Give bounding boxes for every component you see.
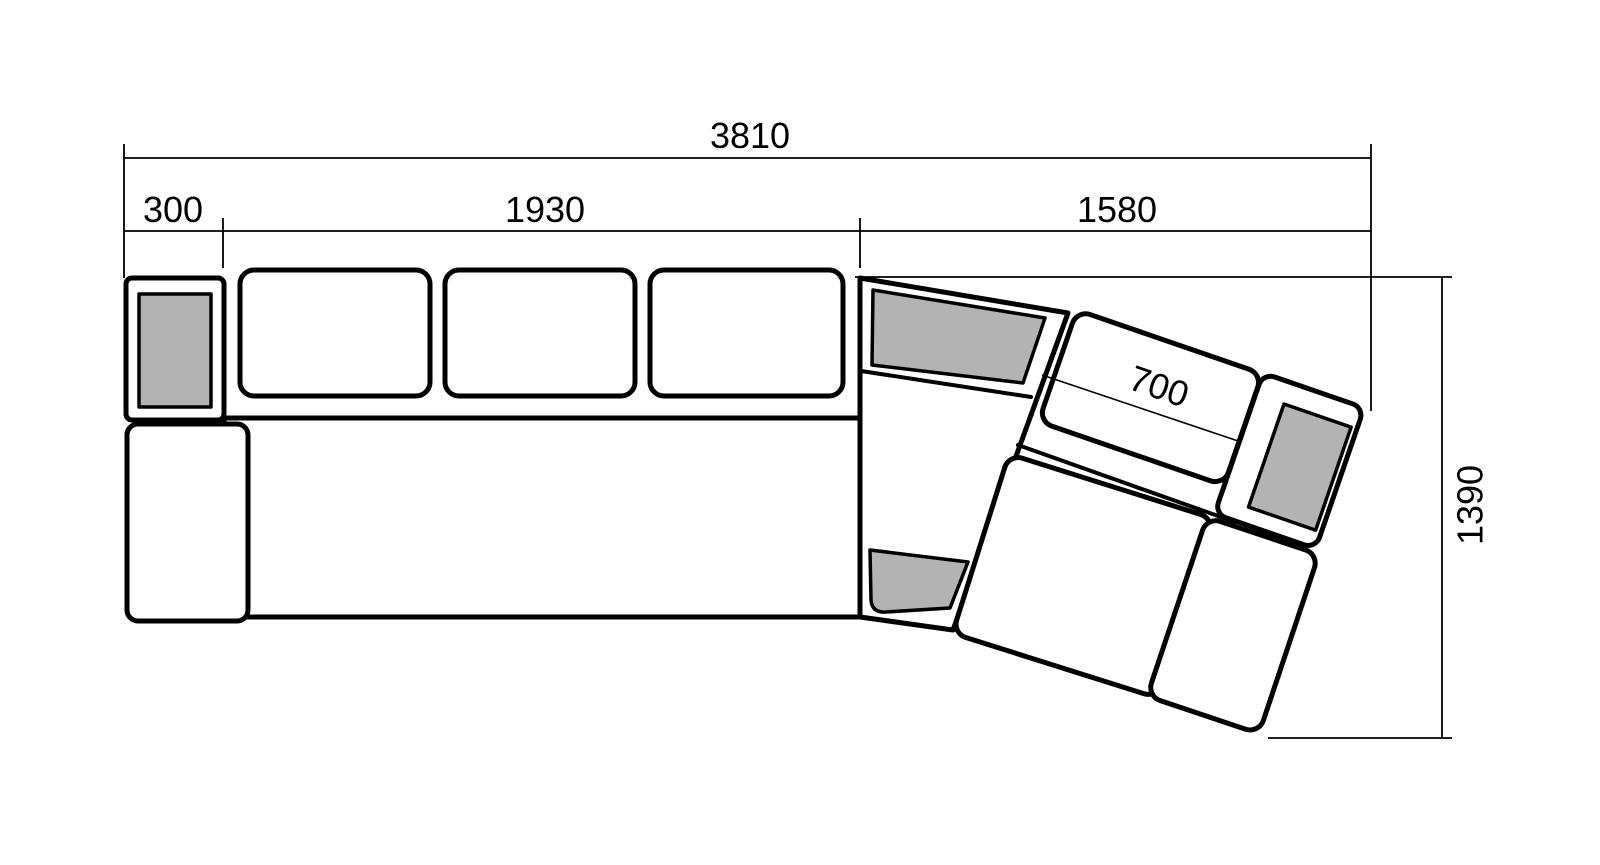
label-corner-section-width: 1580 (1077, 189, 1157, 230)
label-total-width: 3810 (710, 115, 790, 156)
label-depth: 1390 (1450, 465, 1491, 545)
sofa-dimension-diagram: 3810 300 1930 1580 1390 700 (0, 0, 1600, 865)
label-left-arm-width: 300 (143, 189, 203, 230)
left-armrest-pad (139, 294, 211, 407)
wedge-foot-pad (870, 550, 968, 612)
back-cushion-1 (240, 270, 430, 396)
label-straight-section-width: 1930 (505, 189, 585, 230)
back-cushion-3 (650, 270, 843, 396)
straight-section (126, 270, 860, 621)
chaise-section (127, 424, 248, 621)
back-cushion-2 (445, 270, 635, 396)
seat-base (224, 418, 860, 617)
sofa-plan-svg: 3810 300 1930 1580 1390 700 (0, 0, 1600, 865)
